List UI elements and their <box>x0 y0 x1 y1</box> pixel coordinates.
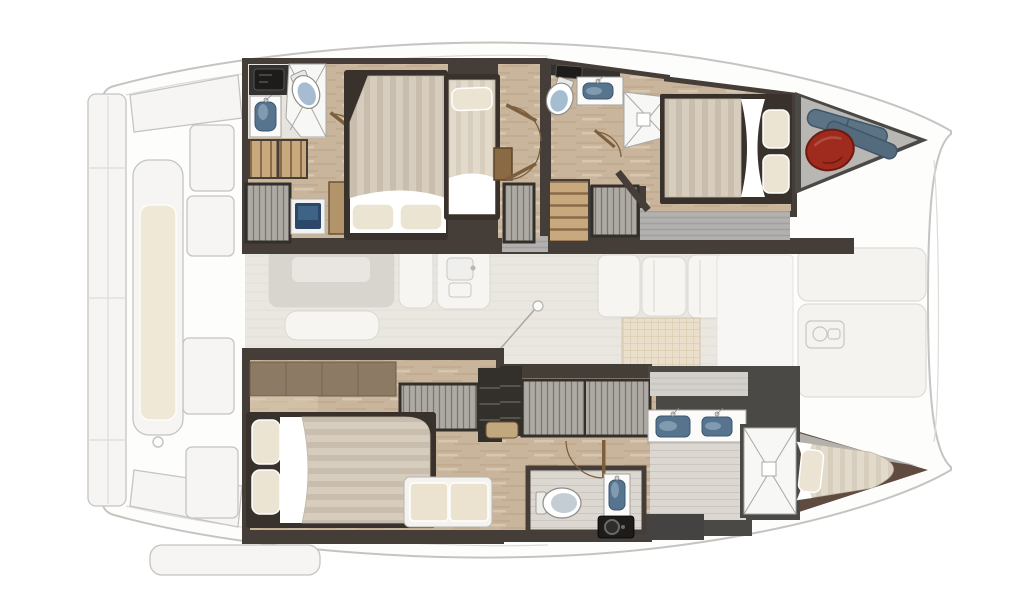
deck-panel <box>183 338 234 414</box>
berth-sheet <box>449 174 495 215</box>
sink-highlight <box>586 87 602 95</box>
foredeck-panel <box>717 255 793 374</box>
pillow <box>763 110 789 148</box>
pillow <box>252 470 280 514</box>
pillow <box>400 204 442 230</box>
sun-pad <box>798 304 926 397</box>
toilet-lid <box>551 493 577 513</box>
headboard-shelf <box>250 362 396 396</box>
ribbed-locker <box>504 184 534 242</box>
bench-sofa <box>285 311 379 340</box>
hanging-wardrobe <box>246 184 290 242</box>
faucet-icon <box>615 476 619 480</box>
steps <box>549 180 589 242</box>
sink-highlight <box>258 104 268 120</box>
table-top-inset <box>292 257 370 282</box>
cabinet <box>598 255 640 317</box>
bench-cushion <box>450 483 488 521</box>
locker-cabinet <box>494 148 512 180</box>
galley-faucet <box>471 266 476 271</box>
bed-mattress <box>665 99 741 197</box>
sink-highlight <box>611 482 619 498</box>
pillow <box>763 155 789 193</box>
floor-plan-svg <box>0 0 1024 600</box>
mast-step-ball <box>533 301 543 311</box>
pillow <box>798 449 824 493</box>
deck-grid-pad <box>622 318 700 370</box>
deck-panel <box>190 125 234 191</box>
pillow <box>252 420 280 464</box>
foredeck-ghost <box>798 248 926 397</box>
side-deck-stripe <box>640 208 790 240</box>
foredeck-front-edge <box>934 160 939 442</box>
sun-pad <box>798 248 926 301</box>
sink-highlight <box>659 421 677 431</box>
washer-knob <box>621 525 625 529</box>
counter-device <box>254 69 284 90</box>
fwd-stairs <box>549 180 638 242</box>
shower-drain <box>637 113 650 126</box>
floor-plan-image: catamaran-deck-floor-plan <box>0 0 1024 600</box>
cabinet <box>642 257 686 316</box>
pillow <box>352 204 394 230</box>
bed-mattress <box>350 76 446 198</box>
sink-highlight <box>705 422 721 430</box>
pillow <box>452 87 493 110</box>
deck-panel <box>187 196 234 256</box>
washer-door <box>605 520 619 534</box>
wood-step <box>486 422 518 438</box>
galley-sink <box>447 258 473 280</box>
bench-cushion <box>410 483 448 521</box>
shower-drain <box>762 462 776 476</box>
swim-step <box>150 545 320 575</box>
door-leaf <box>602 440 606 478</box>
bed-sheet <box>280 417 308 523</box>
transom-platform <box>88 94 126 506</box>
screen-glare <box>298 206 318 220</box>
lounge-cushion <box>140 205 176 420</box>
deck-panel <box>186 447 238 518</box>
